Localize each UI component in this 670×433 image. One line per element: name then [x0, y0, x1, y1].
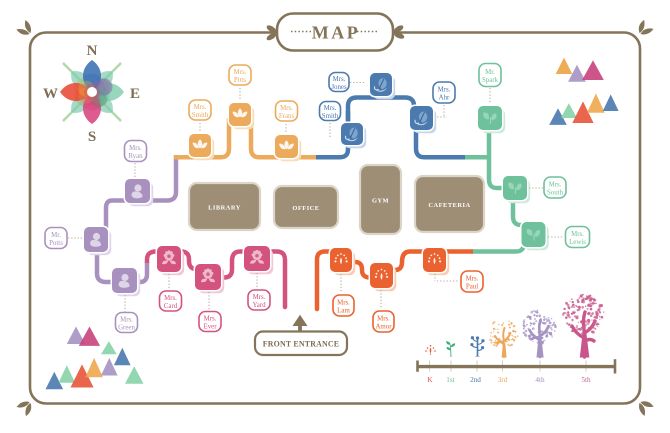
svg-text:OFFICE: OFFICE — [292, 205, 319, 212]
svg-text:Amor: Amor — [375, 324, 392, 331]
svg-text:Ryan: Ryan — [128, 153, 143, 160]
svg-text:Green: Green — [118, 325, 135, 332]
svg-text:Mrs.: Mrs. — [377, 315, 390, 322]
svg-text:Smith: Smith — [192, 112, 209, 119]
svg-text:South: South — [547, 190, 564, 197]
svg-text:S: S — [88, 129, 96, 145]
svg-text:3rd: 3rd — [498, 376, 508, 384]
svg-text:Ahr: Ahr — [439, 95, 450, 102]
svg-text:E: E — [130, 86, 140, 102]
svg-text:Mrs.: Mrs. — [120, 316, 133, 323]
svg-text:Mrs.: Mrs. — [234, 69, 247, 76]
svg-text:Mr.: Mr. — [51, 232, 61, 239]
svg-text:5th: 5th — [581, 376, 591, 384]
svg-text:Pitts: Pitts — [234, 77, 247, 84]
svg-text:Mrs.: Mrs. — [571, 231, 584, 238]
svg-text:Jones: Jones — [331, 84, 347, 91]
svg-text:Mrs.: Mrs. — [204, 315, 217, 322]
svg-text:FRONT ENTRANCE: FRONT ENTRANCE — [263, 340, 340, 349]
svg-text:Spark: Spark — [482, 77, 499, 84]
svg-text:Card: Card — [164, 303, 178, 310]
svg-text:CAFETERIA: CAFETERIA — [428, 202, 470, 209]
svg-text:Lewis: Lewis — [569, 239, 586, 246]
svg-text:Mrs.: Mrs. — [337, 299, 350, 306]
svg-text:Mrs.: Mrs. — [324, 105, 337, 112]
svg-text:Smith: Smith — [322, 113, 339, 120]
svg-text:Mr.: Mr. — [485, 69, 495, 76]
svg-text:1st: 1st — [446, 376, 454, 384]
svg-text:Lam: Lam — [337, 308, 350, 315]
svg-text:Mrs.: Mrs. — [333, 76, 346, 83]
svg-text:Ever: Ever — [203, 324, 217, 331]
svg-text:Mrs.: Mrs. — [194, 104, 207, 111]
svg-text:GYM: GYM — [372, 198, 389, 205]
svg-text:Mrs.: Mrs. — [129, 145, 142, 152]
svg-text:LIBRARY: LIBRARY — [208, 205, 241, 212]
svg-text:2nd: 2nd — [470, 376, 481, 384]
svg-text:Mrs.: Mrs. — [164, 295, 177, 302]
svg-text:4th: 4th — [535, 376, 545, 384]
svg-text:N: N — [87, 43, 98, 59]
svg-text:Mrs.: Mrs. — [549, 181, 562, 188]
svg-text:Potts: Potts — [49, 240, 63, 247]
svg-text:W: W — [43, 86, 58, 102]
svg-text:Paul: Paul — [466, 284, 478, 291]
svg-text:Mrs.: Mrs. — [253, 294, 266, 301]
svg-text:MAP: MAP — [312, 23, 360, 43]
svg-text:Frans: Frans — [279, 113, 295, 120]
svg-text:Mrs.: Mrs. — [438, 86, 451, 93]
svg-text:Yard: Yard — [252, 302, 266, 309]
svg-text:Mrs.: Mrs. — [466, 275, 479, 282]
svg-text:K: K — [427, 376, 433, 384]
svg-text:Mrs.: Mrs. — [280, 105, 293, 112]
